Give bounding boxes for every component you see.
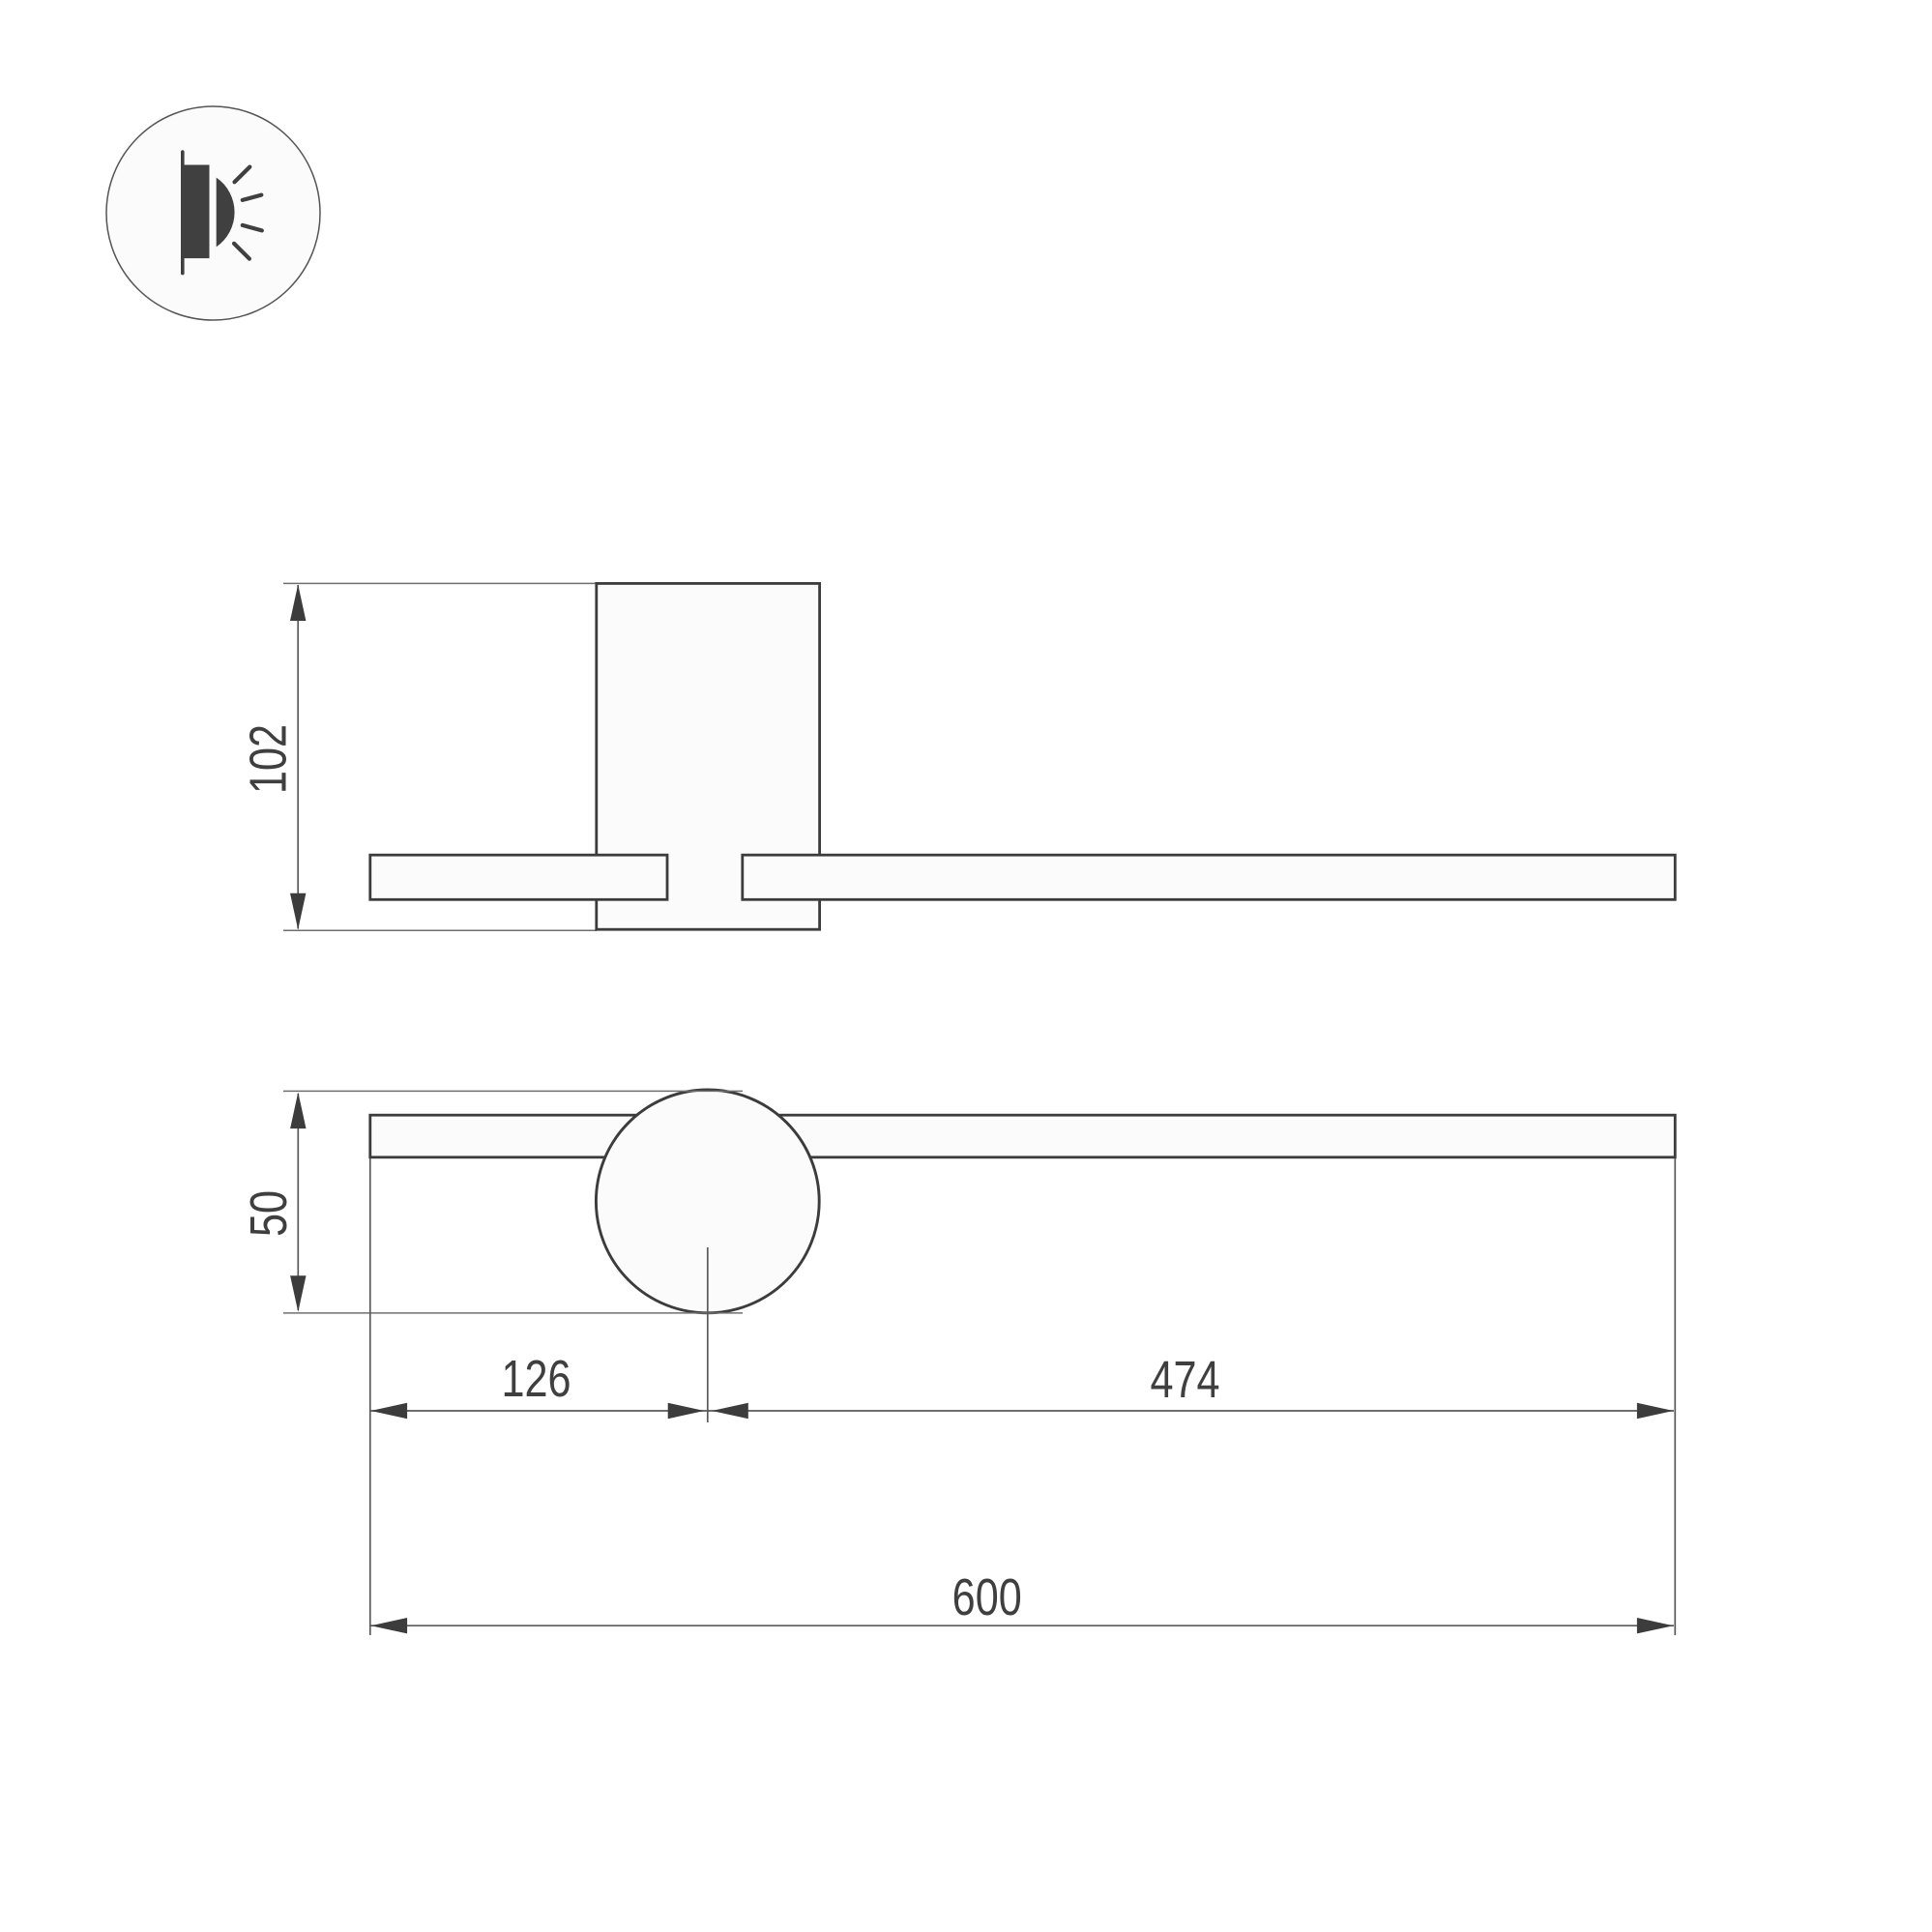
- svg-text:50: 50: [241, 1190, 299, 1237]
- svg-text:102: 102: [240, 724, 298, 794]
- svg-text:600: 600: [952, 1569, 1022, 1627]
- svg-text:474: 474: [1150, 1352, 1219, 1410]
- svg-text:126: 126: [501, 1351, 571, 1409]
